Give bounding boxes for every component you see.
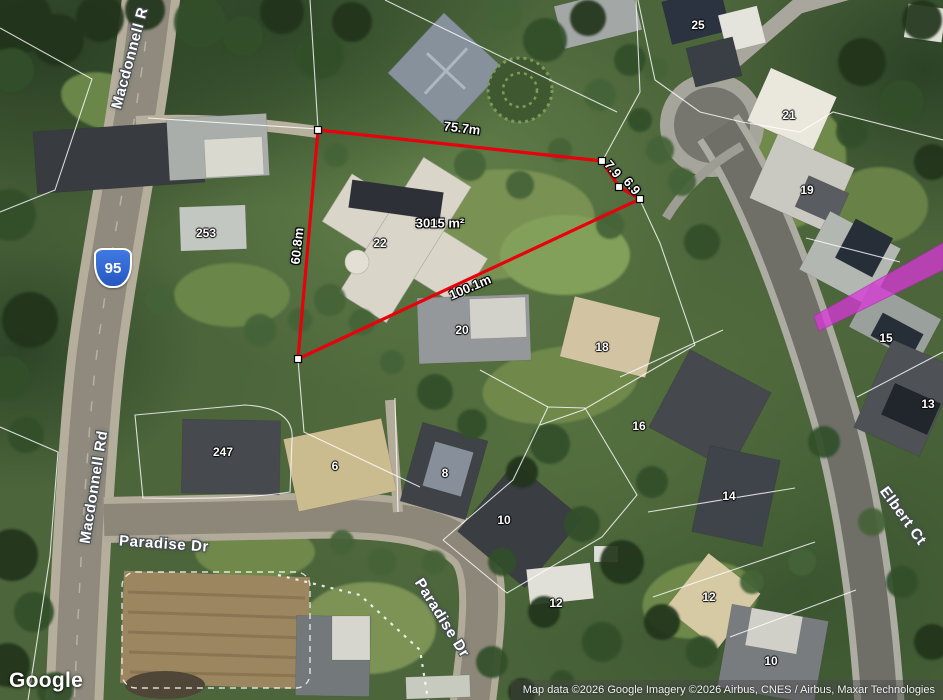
google-logo[interactable]: Google xyxy=(9,669,83,693)
measurement-vertex-handle[interactable] xyxy=(315,127,322,134)
field xyxy=(120,571,310,699)
measurement-vertex-handle[interactable] xyxy=(637,196,644,203)
route-number: 95 xyxy=(105,260,122,277)
measurement-vertex-handle[interactable] xyxy=(599,158,606,165)
copyright-text: Map data ©2026 Google Imagery ©2026 Airb… xyxy=(523,684,935,696)
map-canvas[interactable]: Macdonnell RMacdonnell RdParadise DrPara… xyxy=(0,0,943,700)
copyright-attribution: Map data ©2026 Google Imagery ©2026 Airb… xyxy=(511,680,943,700)
measurement-vertex-handle[interactable] xyxy=(295,356,302,363)
ornamental-garden xyxy=(488,58,552,122)
measurement-vertex-handle[interactable] xyxy=(616,184,623,191)
satellite-imagery xyxy=(0,0,943,700)
